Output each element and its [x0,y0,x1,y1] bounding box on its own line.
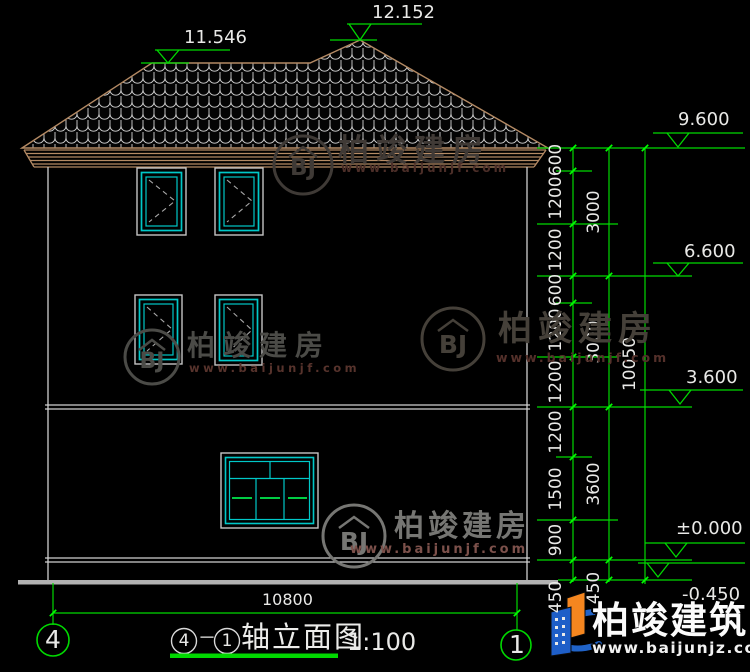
axis-number-right: 1 [509,632,523,657]
watermark-initials-right: BJ [433,332,473,357]
axis-number-left: 4 [45,627,61,652]
casement-symbol [149,180,175,222]
watermark-brand-left: 柏竣建房 [187,332,331,360]
level-9600 [653,133,743,147]
cad-elevation-drawing: 11.546 12.152 9.600 6.600 3.600 ±0.000 -… [0,0,750,672]
level-label-roof-peak: 12.152 [372,4,435,22]
level-label-eave: 9.600 [678,111,730,129]
watermark-initials-left: BJ [132,351,172,373]
dim-inner-8: 900 [547,508,565,572]
window-floor1-center [221,453,318,528]
title-underline [170,654,338,659]
casement-symbol [227,180,252,222]
ground-line [18,580,558,585]
level-minus450 [638,563,745,577]
footer-brand: 柏竣建筑 [592,602,748,639]
level-12152 [330,24,422,40]
level-label-floor3: 6.600 [684,243,736,261]
level-6600 [653,263,743,276]
title-axis-start: 4 [177,633,191,650]
watermark-site-bottom: www.baijunjf.com [350,543,528,556]
dim-inner-9: 450 [547,565,565,629]
level-3600 [640,390,743,404]
level-label-floor2: 3.600 [686,369,738,387]
dim-middle-2: 3600 [585,452,603,516]
level-label-ground: ±0.000 [676,520,743,538]
dim-inner-6: 1200 [547,400,565,464]
watermark-brand-bottom: 柏竣建房 [394,512,530,542]
footer-site: www.baijunjz.com [592,641,750,657]
level-11546 [141,50,230,63]
window-floor3-left [137,168,186,235]
watermark-brand-right: 柏竣建房 [498,312,658,346]
title-dash: － [198,630,216,648]
level-zero [645,543,745,557]
title-axis-end: 1 [220,633,234,650]
dim-middle-0: 3000 [585,180,603,244]
dim-bottom-width: 10800 [262,592,312,608]
watermark-site-right: www.baijunjf.com [496,352,669,365]
level-label-roof-break: 11.546 [184,29,247,47]
watermark-site-top: www.baijunjf.com [341,162,509,174]
window-floor3-right [215,168,263,235]
watermark-initials-top: BJ [283,157,323,180]
drawing-scale: 1:100 [347,630,416,654]
watermark-site-left: www.baijunjf.com [189,363,360,375]
